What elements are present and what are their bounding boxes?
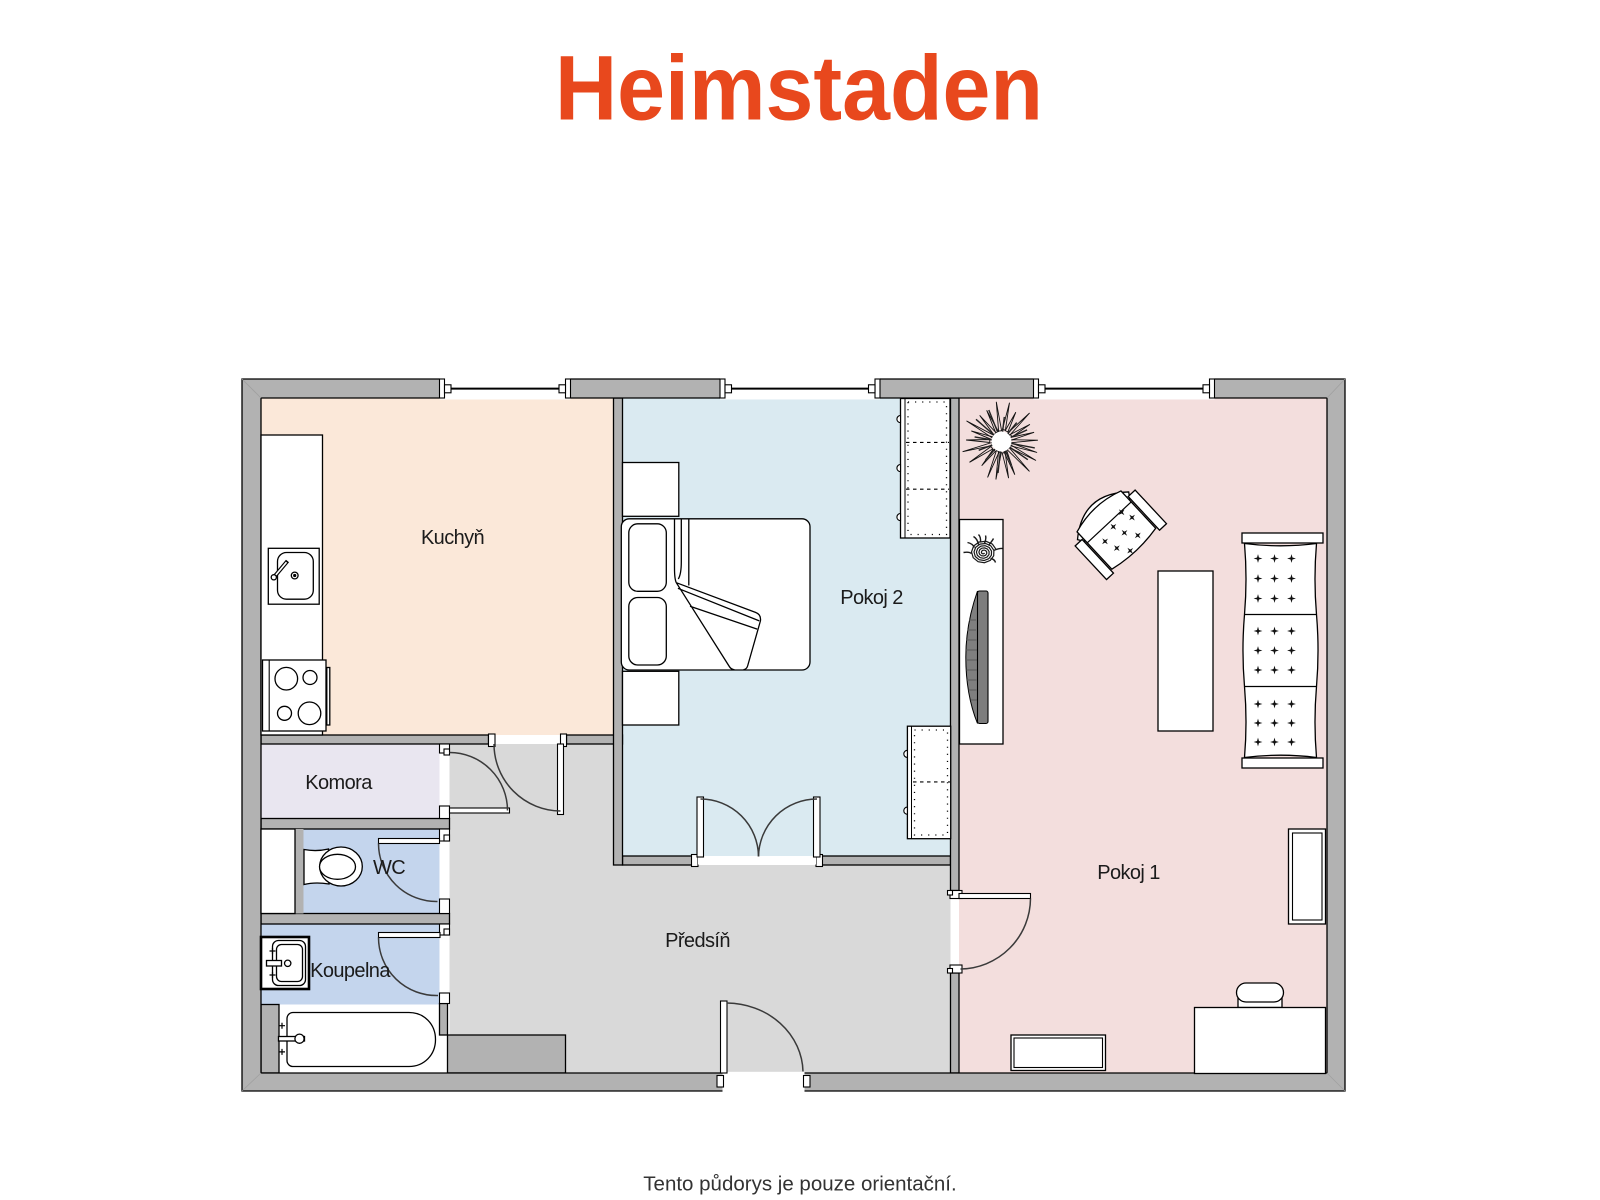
svg-text:Heimstaden: Heimstaden <box>555 38 1043 140</box>
svg-text:Tento půdorys je pouze orienta: Tento půdorys je pouze orientační. <box>643 1173 956 1196</box>
